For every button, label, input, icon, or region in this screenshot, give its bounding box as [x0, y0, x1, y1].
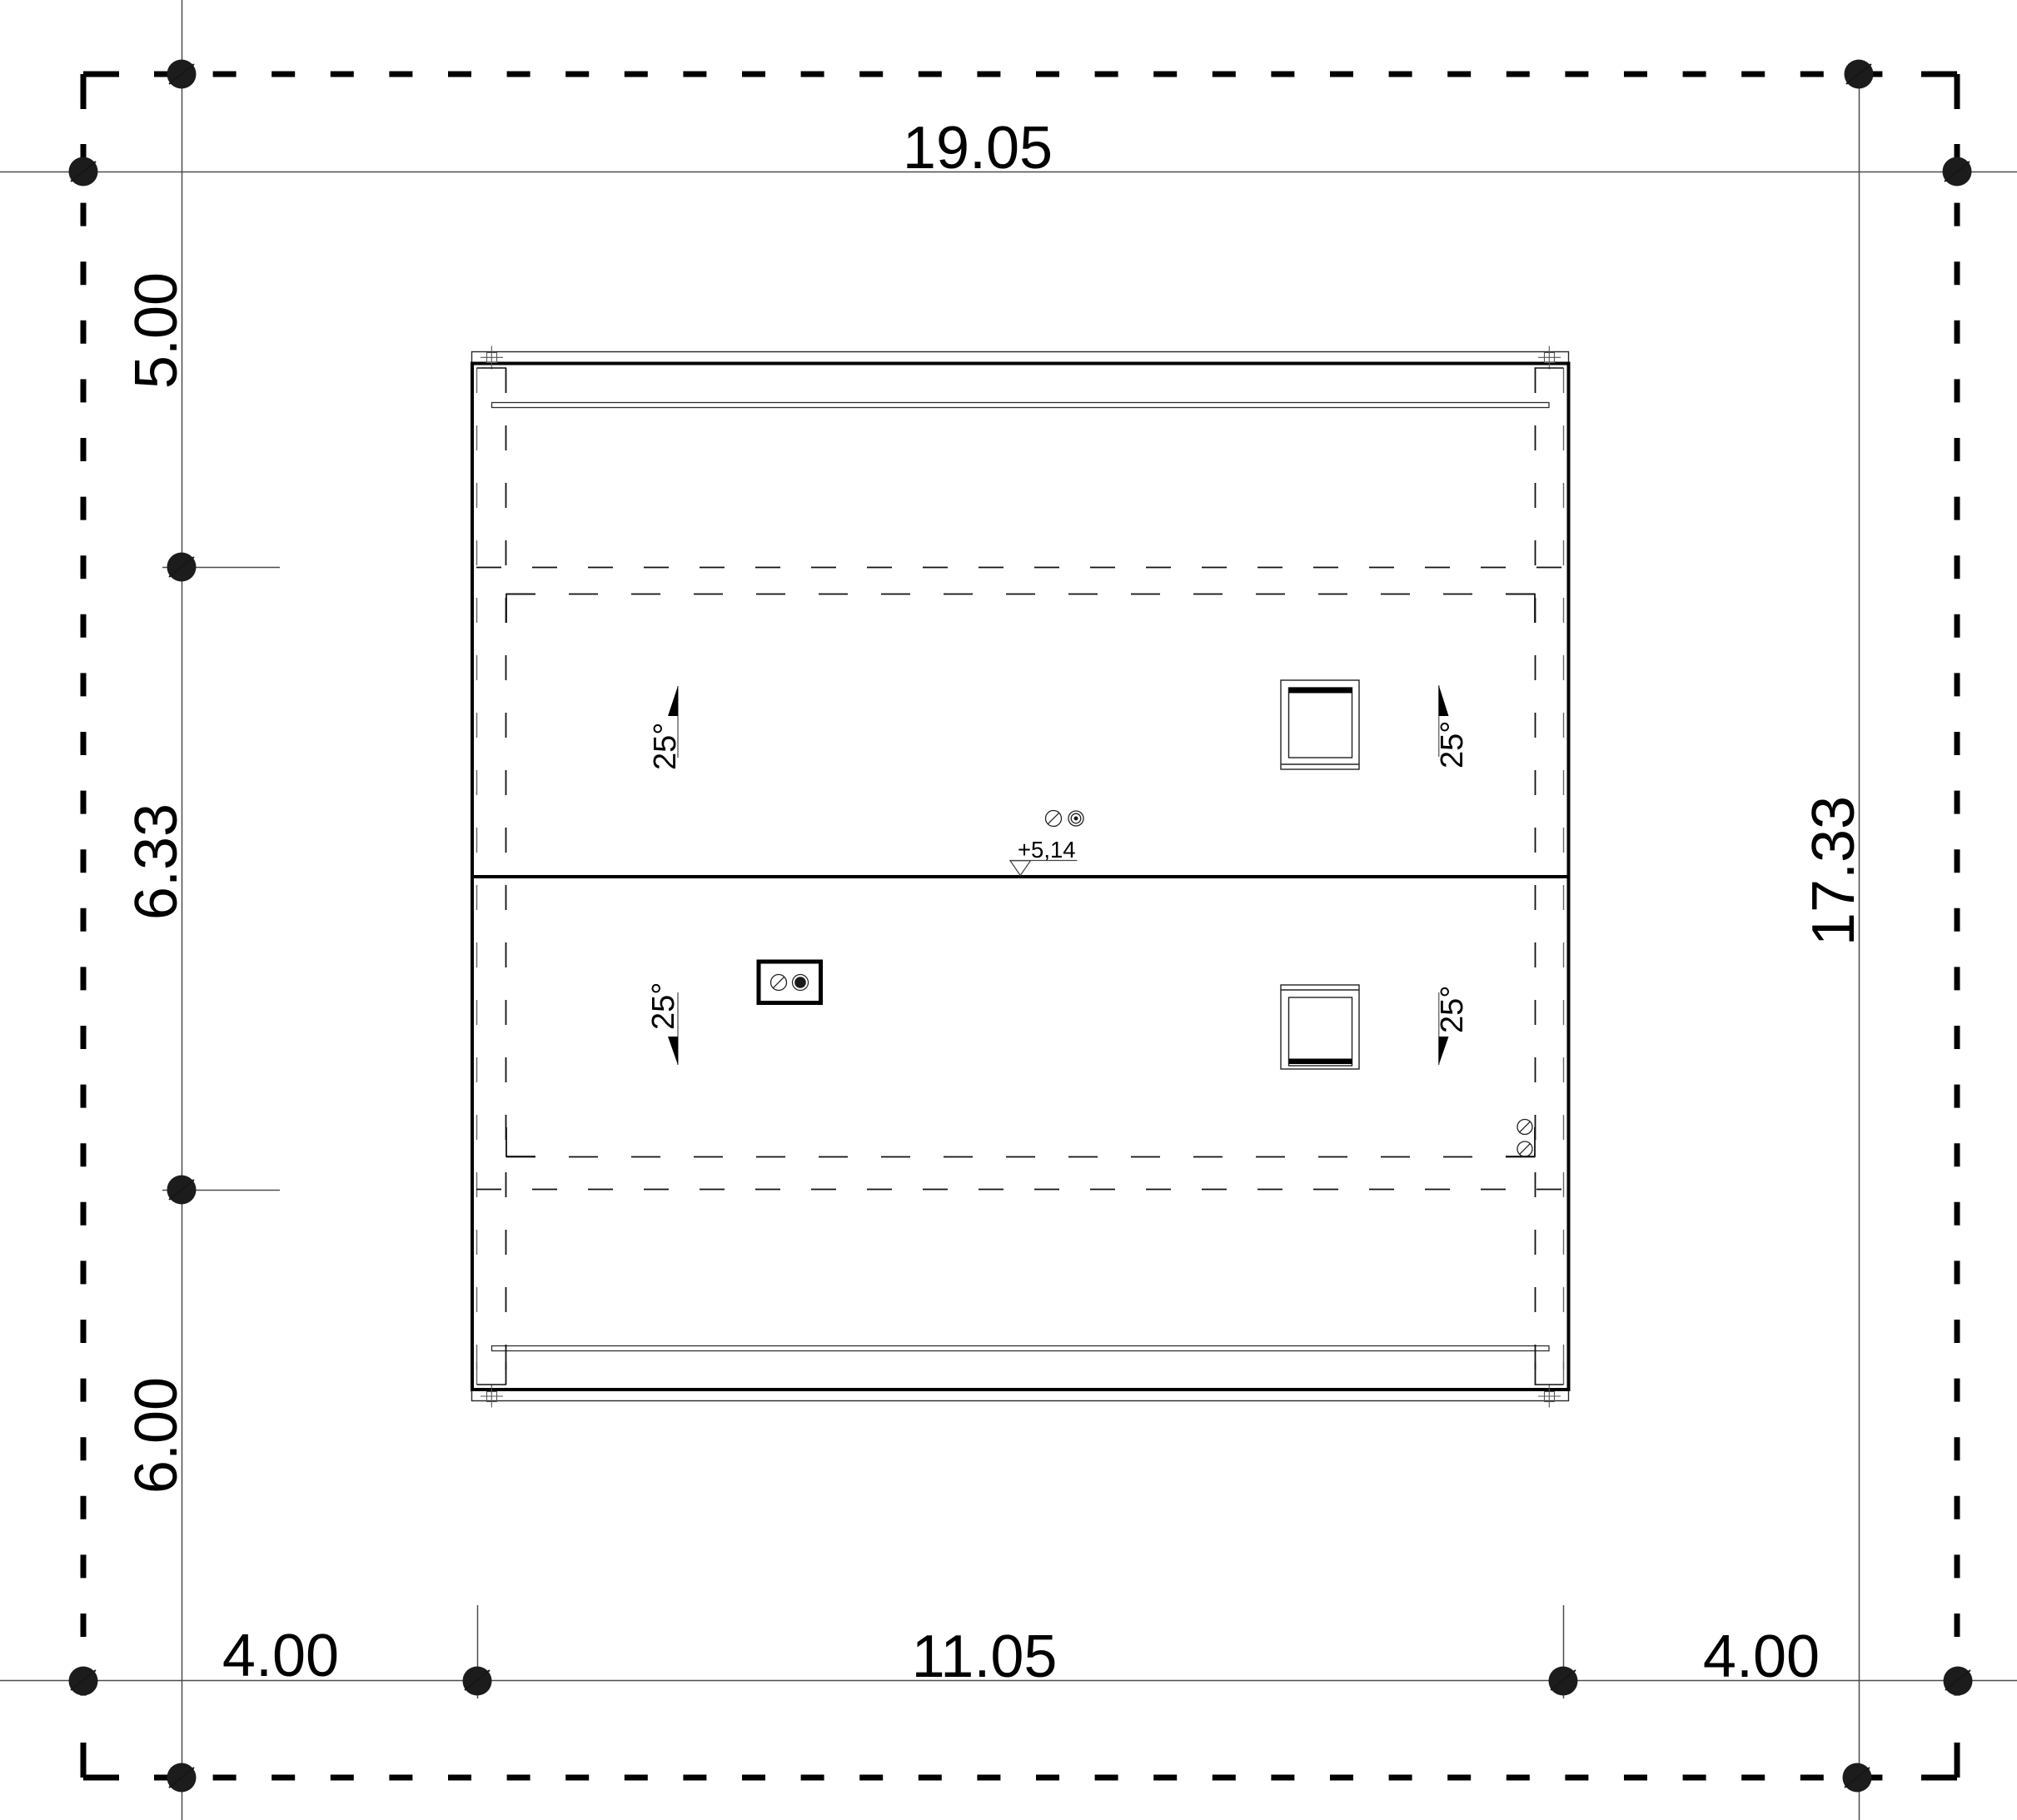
svg-text:11.05: 11.05: [912, 1624, 1058, 1690]
svg-text:19.05: 19.05: [903, 115, 1053, 182]
svg-text:6.00: 6.00: [123, 1377, 190, 1494]
svg-text:25°: 25°: [646, 982, 681, 1030]
svg-text:25°: 25°: [1435, 986, 1470, 1033]
svg-text:5.00: 5.00: [123, 272, 190, 389]
svg-text:4.00: 4.00: [222, 1623, 339, 1689]
svg-text:6.33: 6.33: [123, 803, 190, 920]
svg-text:17.33: 17.33: [1800, 796, 1867, 946]
svg-text:25°: 25°: [1435, 721, 1470, 768]
svg-text:25°: 25°: [648, 723, 683, 770]
svg-text:4.00: 4.00: [1703, 1624, 1820, 1690]
svg-text:+5,14: +5,14: [1018, 837, 1076, 863]
